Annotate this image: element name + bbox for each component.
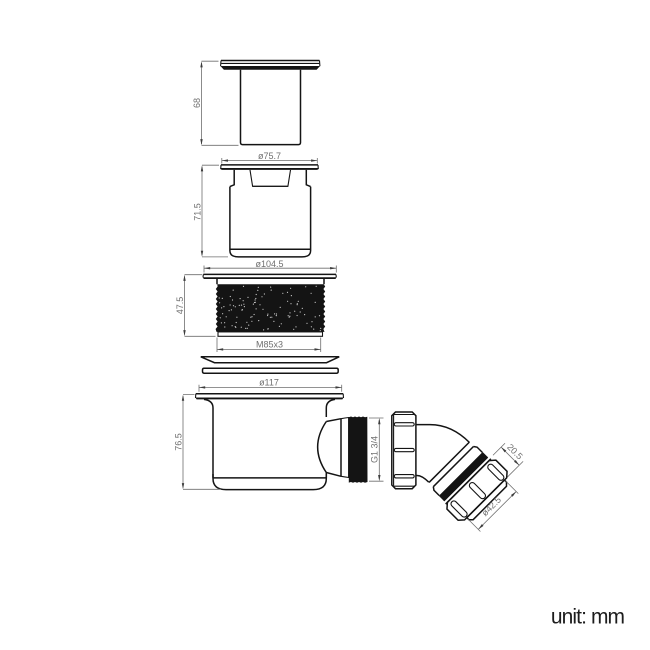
svg-text:ø117: ø117 (259, 377, 279, 387)
svg-text:ø75.7: ø75.7 (258, 151, 281, 161)
svg-text:ø104.5: ø104.5 (255, 259, 283, 269)
svg-text:unit: mm: unit: mm (551, 606, 625, 629)
svg-text:71.5: 71.5 (192, 203, 202, 221)
svg-text:M85x3: M85x3 (256, 340, 283, 350)
svg-text:76.5: 76.5 (174, 433, 184, 451)
svg-text:G1 3/4: G1 3/4 (370, 436, 380, 463)
svg-text:47.5: 47.5 (175, 297, 185, 315)
svg-text:68: 68 (192, 98, 202, 108)
